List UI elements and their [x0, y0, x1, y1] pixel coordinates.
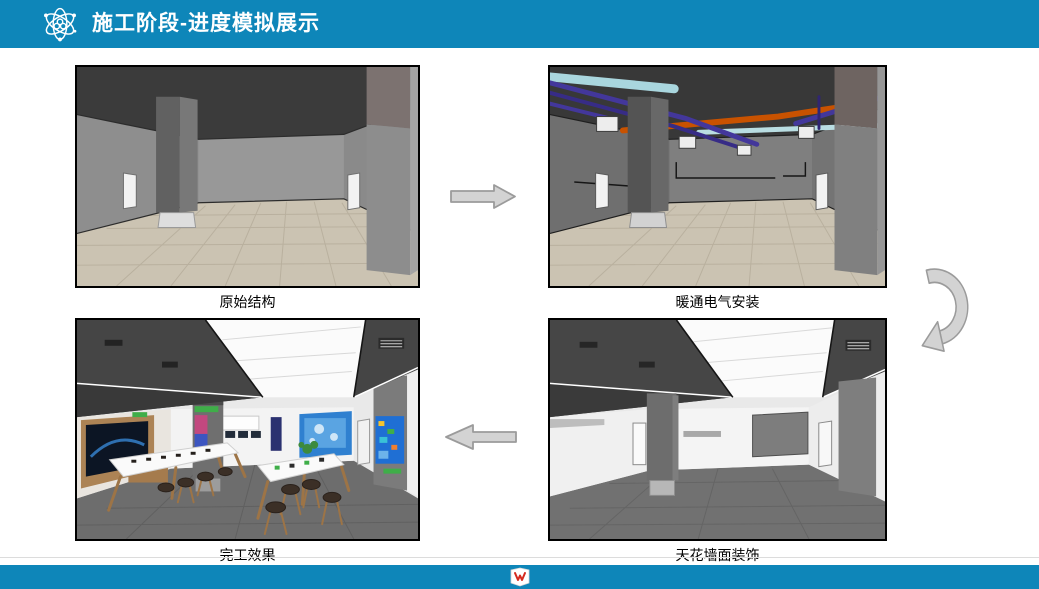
brand-logo-icon: [509, 567, 531, 587]
stage-image-ceiling-wall-decoration: 天花墙面装饰: [548, 318, 887, 541]
footer-bar: [0, 565, 1039, 589]
stage-caption: 完工效果: [75, 545, 420, 565]
render-mep-installation: [550, 67, 885, 286]
atom-icon: [40, 4, 80, 44]
render-finished-effect: [77, 320, 418, 539]
stage-caption: 原始结构: [75, 292, 420, 312]
render-ceiling-wall-decoration: [550, 320, 885, 539]
footer-divider: [0, 557, 1039, 558]
stage-image-frame: [75, 65, 420, 288]
stage-caption: 暖通电气安装: [548, 292, 887, 312]
stage-image-frame: [75, 318, 420, 541]
arrow-left-icon: [443, 422, 517, 452]
stage-caption: 天花墙面装饰: [548, 545, 887, 565]
stage-image-finished-effect: 完工效果: [75, 318, 420, 541]
arrow-curved-down-icon: [913, 262, 968, 353]
stage-image-mep-installation: 暖通电气安装: [548, 65, 887, 288]
page-title: 施工阶段-进度模拟展示: [92, 0, 320, 48]
header-bar: 施工阶段-进度模拟展示: [0, 0, 1039, 48]
render-original-structure: [77, 67, 418, 286]
stage-image-frame: [548, 318, 887, 541]
stage-image-original-structure: 原始结构: [75, 65, 420, 288]
arrow-right-icon: [450, 183, 517, 210]
slide: 施工阶段-进度模拟展示: [0, 0, 1039, 589]
stage-image-frame: [548, 65, 887, 288]
